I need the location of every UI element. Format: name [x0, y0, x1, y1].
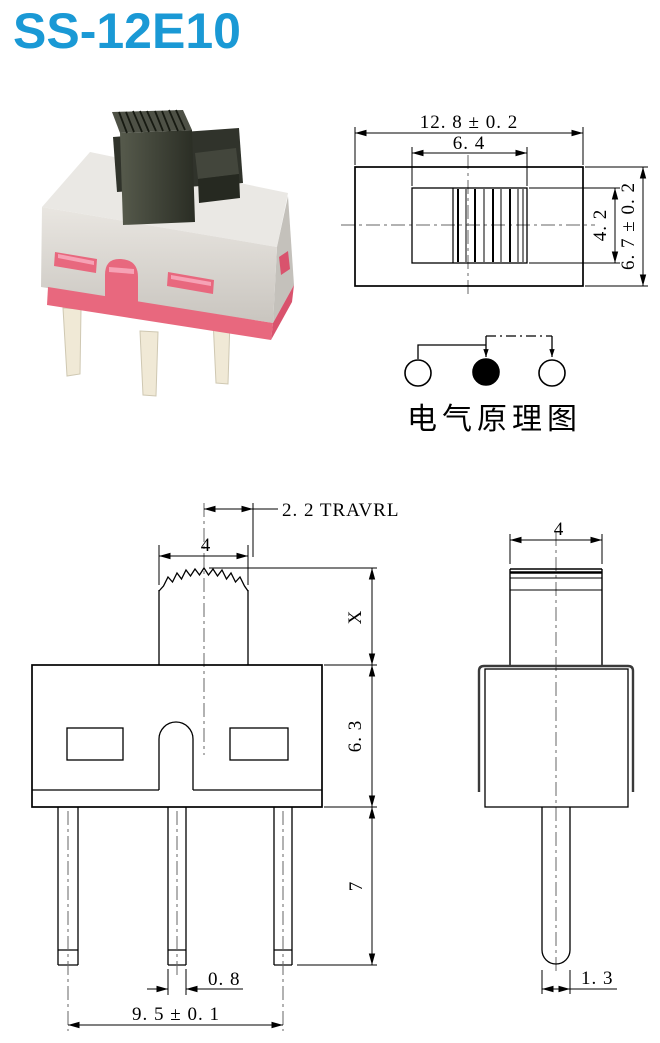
photo-slider-step: [195, 148, 240, 203]
schematic-pole-closed-center: [473, 359, 499, 385]
page-title: SS-12E10: [13, 2, 241, 60]
schematic-wire-left: [418, 345, 486, 359]
front-body-outline: [32, 665, 322, 807]
side-view-drawing: 4 1. 3: [440, 520, 660, 1020]
dim-body-height-label: 6. 3: [345, 720, 366, 753]
product-photo: [25, 95, 305, 395]
dim-pin-width-label: 0. 8: [208, 969, 241, 990]
front-pins: [58, 807, 292, 965]
dim-knob-depth-label: 4: [554, 519, 565, 540]
front-view-drawing: 2. 2 TRAVRL 4 X 6. 3 7: [10, 495, 410, 1043]
top-view-knob-ridges: [453, 188, 523, 263]
dim-stem-height-label: X: [345, 610, 366, 625]
front-pin-centerlines: [68, 811, 283, 1031]
top-view-drawing: 12. 8 ± 0. 2 6. 4 4. 2 6. 7 ± 0. 2: [335, 105, 660, 300]
photo-knob: [112, 110, 195, 225]
datasheet-page: SS-12E10: [0, 0, 660, 1043]
dim-travel-label: 2. 2 TRAVRL: [282, 500, 399, 521]
dim-slot-width-label: 6. 4: [453, 133, 486, 154]
dim-knob-width-label: 4: [201, 535, 212, 556]
dim-pin-length-label: 7: [346, 881, 367, 892]
dimension-travel: [204, 503, 278, 557]
dim-pin-tip-width-label: 1. 3: [581, 968, 614, 989]
schematic-pole-open-left: [405, 360, 431, 386]
front-body-details: [32, 722, 322, 790]
schematic-caption: 电气原理图: [407, 394, 582, 438]
dim-pin-pitch-label: 9. 5 ± 0. 1: [132, 1004, 220, 1025]
schematic-drawing: [390, 325, 590, 405]
dim-overall-width-label: 12. 8 ± 0. 2: [420, 112, 518, 133]
dim-slot-height-label: 4. 2: [590, 209, 611, 242]
top-view-body-outline: [355, 167, 583, 286]
schematic-pole-open-right: [539, 360, 565, 386]
dim-overall-height-label: 6. 7 ± 0. 2: [618, 182, 639, 270]
